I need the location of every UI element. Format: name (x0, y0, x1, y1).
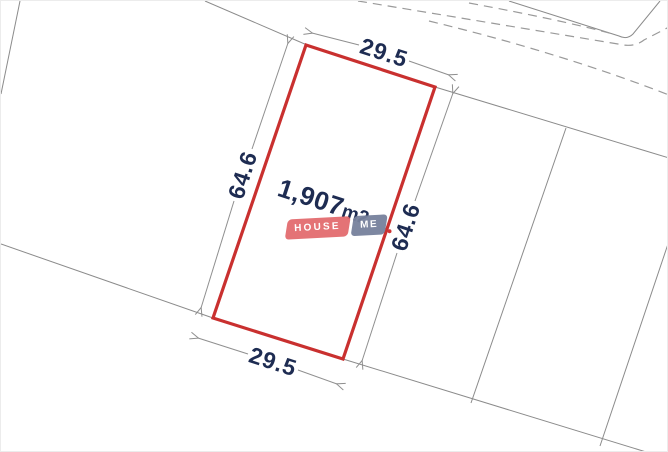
parcel-line-top-left-corner (1, 1, 20, 94)
road-corner-curb-line (509, 1, 660, 38)
dimension-line-top-right-segment (409, 61, 449, 75)
plot-map: 29.5 29.5 64.6 64.6 1,907m2 HOUSE ME (0, 0, 668, 452)
watermark-me-badge: ME (350, 214, 387, 236)
dimension-line-bottom-right-segment (298, 370, 337, 384)
dimension-line-bottom-left-segment (198, 338, 248, 354)
road-edge-line-right (435, 87, 668, 158)
watermark-dot (387, 229, 391, 233)
parcel-division-line-1 (471, 128, 566, 403)
road-edge-line-left (205, 1, 307, 45)
watermark-house-text: HOUSE (294, 222, 341, 234)
dimension-line-top-left-segment (312, 33, 359, 45)
road-dashed-line-middle (469, 3, 613, 34)
road-dashed-line-lower (429, 21, 668, 95)
parcel-division-line-2 (600, 241, 668, 446)
watermark-house-badge: HOUSE (285, 216, 351, 239)
road-dashed-line-upper (358, 1, 668, 45)
watermark-me-text: ME (359, 220, 377, 231)
